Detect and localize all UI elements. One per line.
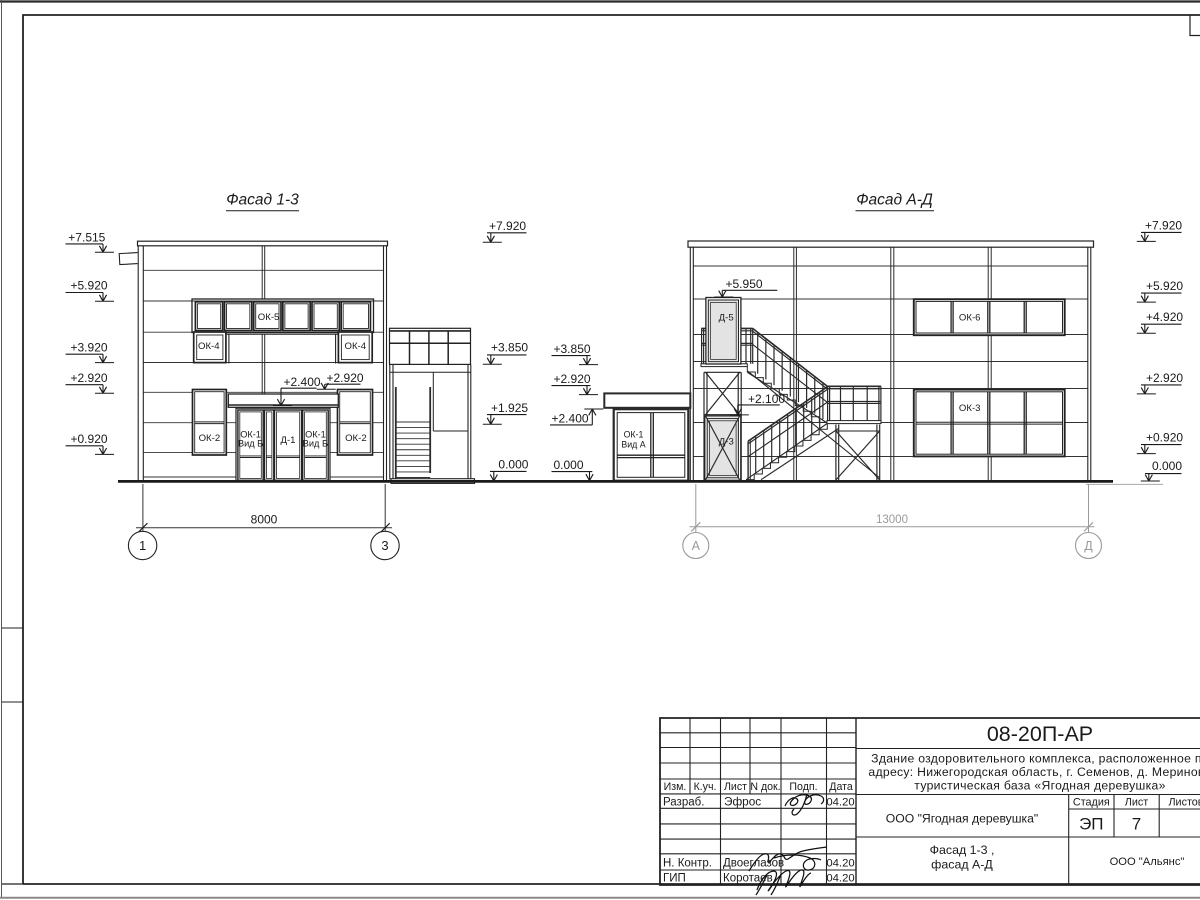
svg-text:+3.920: +3.920 — [71, 340, 108, 354]
svg-text:+5.920: +5.920 — [1146, 279, 1183, 293]
svg-text:Эфрос: Эфрос — [724, 794, 761, 808]
svg-text:3: 3 — [381, 538, 388, 553]
svg-text:+5.920: +5.920 — [71, 279, 108, 293]
svg-text:+2.400: +2.400 — [552, 412, 589, 426]
svg-text:ООО "Ягодная деревушка": ООО "Ягодная деревушка" — [886, 811, 1038, 825]
svg-text:08-20П-АР: 08-20П-АР — [987, 722, 1093, 746]
svg-text:+2.400: +2.400 — [284, 375, 321, 389]
svg-text:+2.920: +2.920 — [327, 371, 364, 385]
svg-text:+0.920: +0.920 — [1146, 431, 1183, 445]
svg-text:+5.950: +5.950 — [726, 277, 763, 291]
svg-text:0.000: 0.000 — [554, 458, 584, 472]
svg-text:1: 1 — [139, 538, 146, 553]
svg-text:Вид А: Вид А — [621, 440, 645, 450]
svg-text:04.20: 04.20 — [826, 872, 854, 884]
svg-text:Лист: Лист — [724, 781, 747, 793]
svg-text:+7.920: +7.920 — [489, 219, 526, 233]
svg-text:ОК-4: ОК-4 — [198, 341, 220, 352]
svg-text:+2.100: +2.100 — [748, 392, 785, 406]
svg-text:Д-5: Д-5 — [719, 312, 734, 323]
svg-text:0.000: 0.000 — [498, 458, 528, 472]
svg-text:Стадия: Стадия — [1073, 797, 1110, 809]
svg-text:Фасад 1-3 ,: Фасад 1-3 , — [930, 843, 995, 857]
svg-text:+4.920: +4.920 — [1146, 310, 1183, 324]
svg-text:Н. Контр.: Н. Контр. — [663, 857, 712, 869]
svg-text:+7.920: +7.920 — [1145, 218, 1182, 232]
svg-text:N док.: N док. — [750, 781, 780, 793]
svg-text:ОК-4: ОК-4 — [345, 341, 367, 352]
svg-text:+1.925: +1.925 — [491, 401, 528, 415]
svg-text:Д-1: Д-1 — [280, 435, 295, 446]
svg-text:+2.920: +2.920 — [554, 372, 591, 386]
svg-text:туристическая база «Ягодная де: туристическая база «Ягодная деревушка» — [914, 779, 1165, 793]
svg-text:0.000: 0.000 — [1152, 459, 1182, 473]
svg-text:Изм.: Изм. — [664, 781, 687, 793]
svg-text:Подп.: Подп. — [789, 781, 817, 793]
svg-text:13000: 13000 — [876, 514, 908, 526]
svg-text:ОК-5: ОК-5 — [258, 312, 280, 323]
svg-text:Здание оздоровительного компле: Здание оздоровительного комплекса, распо… — [871, 752, 1200, 766]
svg-text:К.уч.: К.уч. — [694, 781, 717, 793]
svg-text:ООО "Альянс": ООО "Альянс" — [1110, 856, 1185, 868]
svg-text:8000: 8000 — [251, 513, 278, 527]
svg-text:Листов: Листов — [1168, 797, 1200, 809]
svg-text:+2.920: +2.920 — [71, 371, 108, 385]
svg-text:Дата: Дата — [829, 781, 853, 793]
svg-text:+3.850: +3.850 — [554, 342, 591, 356]
svg-text:Фасад 1-3: Фасад 1-3 — [226, 192, 299, 209]
svg-text:Разраб.: Разраб. — [663, 796, 704, 808]
svg-text:Д: Д — [1084, 539, 1093, 553]
svg-text:+2.920: +2.920 — [1146, 371, 1183, 385]
svg-text:ОК-1: ОК-1 — [624, 430, 644, 440]
svg-text:Лист: Лист — [1125, 797, 1149, 809]
svg-text:04.20: 04.20 — [826, 796, 854, 808]
svg-text:фасад А-Д: фасад А-Д — [931, 857, 993, 871]
svg-text:А: А — [692, 539, 701, 553]
svg-text:04.20: 04.20 — [826, 857, 854, 869]
svg-text:ГИП: ГИП — [663, 872, 686, 884]
svg-text:ОК-2: ОК-2 — [199, 433, 221, 444]
svg-text:ОК-2: ОК-2 — [345, 433, 367, 444]
svg-text:+3.850: +3.850 — [491, 341, 528, 355]
svg-text:Вид Б: Вид Б — [238, 439, 263, 449]
svg-text:ОК-6: ОК-6 — [959, 313, 981, 324]
svg-text:ЭП: ЭП — [1079, 814, 1103, 833]
svg-text:Вид Б: Вид Б — [303, 439, 328, 449]
svg-text:+0.920: +0.920 — [71, 432, 108, 446]
svg-text:7: 7 — [1132, 814, 1141, 833]
svg-text:адресу: Нижегородская область,: адресу: Нижегородская область, г. Семено… — [868, 765, 1200, 779]
svg-text:ОК-3: ОК-3 — [959, 403, 981, 414]
svg-text:+7.515: +7.515 — [68, 230, 105, 244]
svg-text:Фасад А-Д: Фасад А-Д — [856, 192, 933, 209]
